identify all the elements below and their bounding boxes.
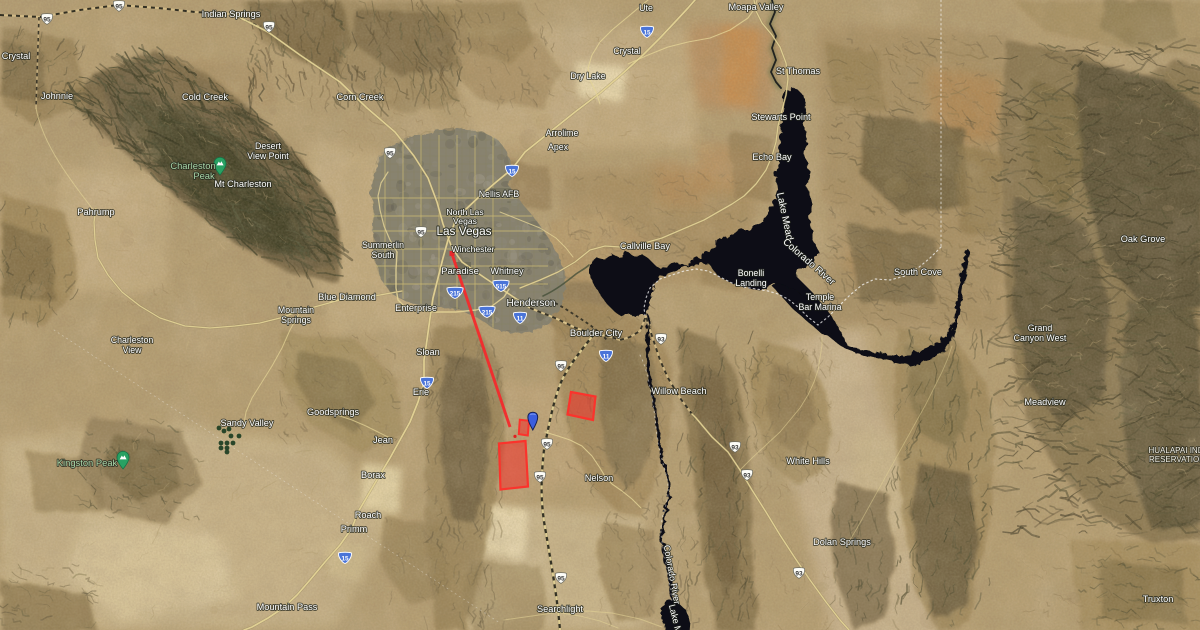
svg-text:15: 15 xyxy=(508,169,516,176)
svg-text:95: 95 xyxy=(43,17,51,24)
svg-text:95: 95 xyxy=(265,25,273,32)
svg-text:Moapa Valley: Moapa Valley xyxy=(729,2,784,12)
svg-text:White Hills: White Hills xyxy=(786,456,830,466)
svg-text:Oak Grove: Oak Grove xyxy=(1121,234,1165,244)
svg-text:95: 95 xyxy=(115,4,123,11)
svg-text:Bonelli: Bonelli xyxy=(738,268,764,278)
svg-text:Arrolime: Arrolime xyxy=(546,128,579,138)
svg-text:215: 215 xyxy=(482,310,493,317)
svg-text:Sloan: Sloan xyxy=(416,347,440,357)
svg-text:93: 93 xyxy=(743,473,751,480)
svg-text:Bar Marina: Bar Marina xyxy=(798,302,841,312)
svg-text:Stewarts Point: Stewarts Point xyxy=(751,112,811,122)
svg-text:Kingston Peak: Kingston Peak xyxy=(57,457,118,468)
svg-text:Indian Springs: Indian Springs xyxy=(202,9,261,19)
svg-text:Pahrump: Pahrump xyxy=(77,207,114,217)
svg-text:Johnnie: Johnnie xyxy=(41,91,73,101)
svg-text:Meadview: Meadview xyxy=(1024,397,1066,407)
svg-text:Dry Lake: Dry Lake xyxy=(570,71,605,81)
svg-text:Nellis AFB: Nellis AFB xyxy=(479,189,520,199)
svg-text:Callville Bay: Callville Bay xyxy=(620,241,670,251)
svg-text:Mountain: Mountain xyxy=(278,305,314,315)
svg-text:Searchlight: Searchlight xyxy=(537,604,583,614)
svg-text:95: 95 xyxy=(557,364,565,371)
svg-text:RESERVATION: RESERVATION xyxy=(1149,455,1200,464)
svg-text:Paradise: Paradise xyxy=(441,266,479,277)
svg-text:South Cove: South Cove xyxy=(894,267,942,277)
svg-text:Cold Creek: Cold Creek xyxy=(182,92,228,102)
svg-text:Mountain Pass: Mountain Pass xyxy=(257,602,318,612)
svg-text:Nelson: Nelson xyxy=(585,473,614,483)
svg-text:Goodsprings: Goodsprings xyxy=(307,407,359,417)
svg-text:11: 11 xyxy=(603,354,610,361)
svg-text:15: 15 xyxy=(341,556,349,563)
svg-text:Echo Bay: Echo Bay xyxy=(752,152,792,162)
svg-text:Springs: Springs xyxy=(281,315,311,325)
svg-text:93: 93 xyxy=(731,445,739,452)
svg-text:93: 93 xyxy=(657,337,665,344)
svg-text:View Point: View Point xyxy=(247,151,289,161)
svg-text:Sandy Valley: Sandy Valley xyxy=(221,418,274,428)
svg-text:Landing: Landing xyxy=(735,278,766,288)
svg-text:11: 11 xyxy=(517,316,524,323)
svg-text:515: 515 xyxy=(496,284,507,291)
svg-text:215: 215 xyxy=(450,291,461,298)
svg-text:95: 95 xyxy=(417,230,425,237)
svg-text:Jean: Jean xyxy=(373,435,393,445)
svg-text:Truxton: Truxton xyxy=(1143,594,1174,604)
svg-text:Grand: Grand xyxy=(1028,323,1053,333)
svg-text:Whitney: Whitney xyxy=(490,266,524,276)
svg-text:95: 95 xyxy=(543,442,551,449)
svg-text:Apex: Apex xyxy=(548,142,569,152)
svg-text:Charleston: Charleston xyxy=(111,335,154,345)
svg-text:St Thomas: St Thomas xyxy=(776,66,821,76)
svg-text:Summerlin: Summerlin xyxy=(362,240,404,250)
svg-text:Willow Beach: Willow Beach xyxy=(651,386,706,396)
svg-text:HUALAPAI IND: HUALAPAI IND xyxy=(1149,446,1200,455)
svg-text:Desert: Desert xyxy=(255,141,281,151)
svg-text:Canyon West: Canyon West xyxy=(1014,333,1067,343)
svg-text:Borax: Borax xyxy=(361,470,385,480)
svg-text:Primm: Primm xyxy=(341,524,368,534)
svg-text:95: 95 xyxy=(557,576,565,583)
svg-text:View: View xyxy=(123,345,143,355)
svg-text:Crystal: Crystal xyxy=(2,51,31,61)
svg-text:Corn Creek: Corn Creek xyxy=(337,92,384,102)
svg-text:Las Vegas: Las Vegas xyxy=(436,224,491,238)
svg-text:Enterprise: Enterprise xyxy=(395,303,437,313)
svg-text:15: 15 xyxy=(423,381,431,388)
svg-text:Blue Diamond: Blue Diamond xyxy=(318,292,376,302)
svg-text:Ute: Ute xyxy=(639,3,653,13)
svg-text:Crystal: Crystal xyxy=(613,46,640,56)
svg-text:Roach: Roach xyxy=(355,510,382,520)
svg-text:95: 95 xyxy=(386,151,394,158)
svg-text:Temple: Temple xyxy=(806,292,834,302)
svg-text:Henderson: Henderson xyxy=(507,298,556,309)
svg-text:Mt Charleston: Mt Charleston xyxy=(214,179,271,189)
svg-text:Peak: Peak xyxy=(193,170,215,181)
svg-text:93: 93 xyxy=(795,571,803,578)
svg-text:Dolan Springs: Dolan Springs xyxy=(813,537,871,547)
svg-text:15: 15 xyxy=(643,30,651,37)
svg-text:95: 95 xyxy=(536,475,544,482)
svg-text:South: South xyxy=(372,250,395,260)
svg-text:Boulder City: Boulder City xyxy=(570,328,622,339)
svg-text:Winchester: Winchester xyxy=(452,244,495,254)
